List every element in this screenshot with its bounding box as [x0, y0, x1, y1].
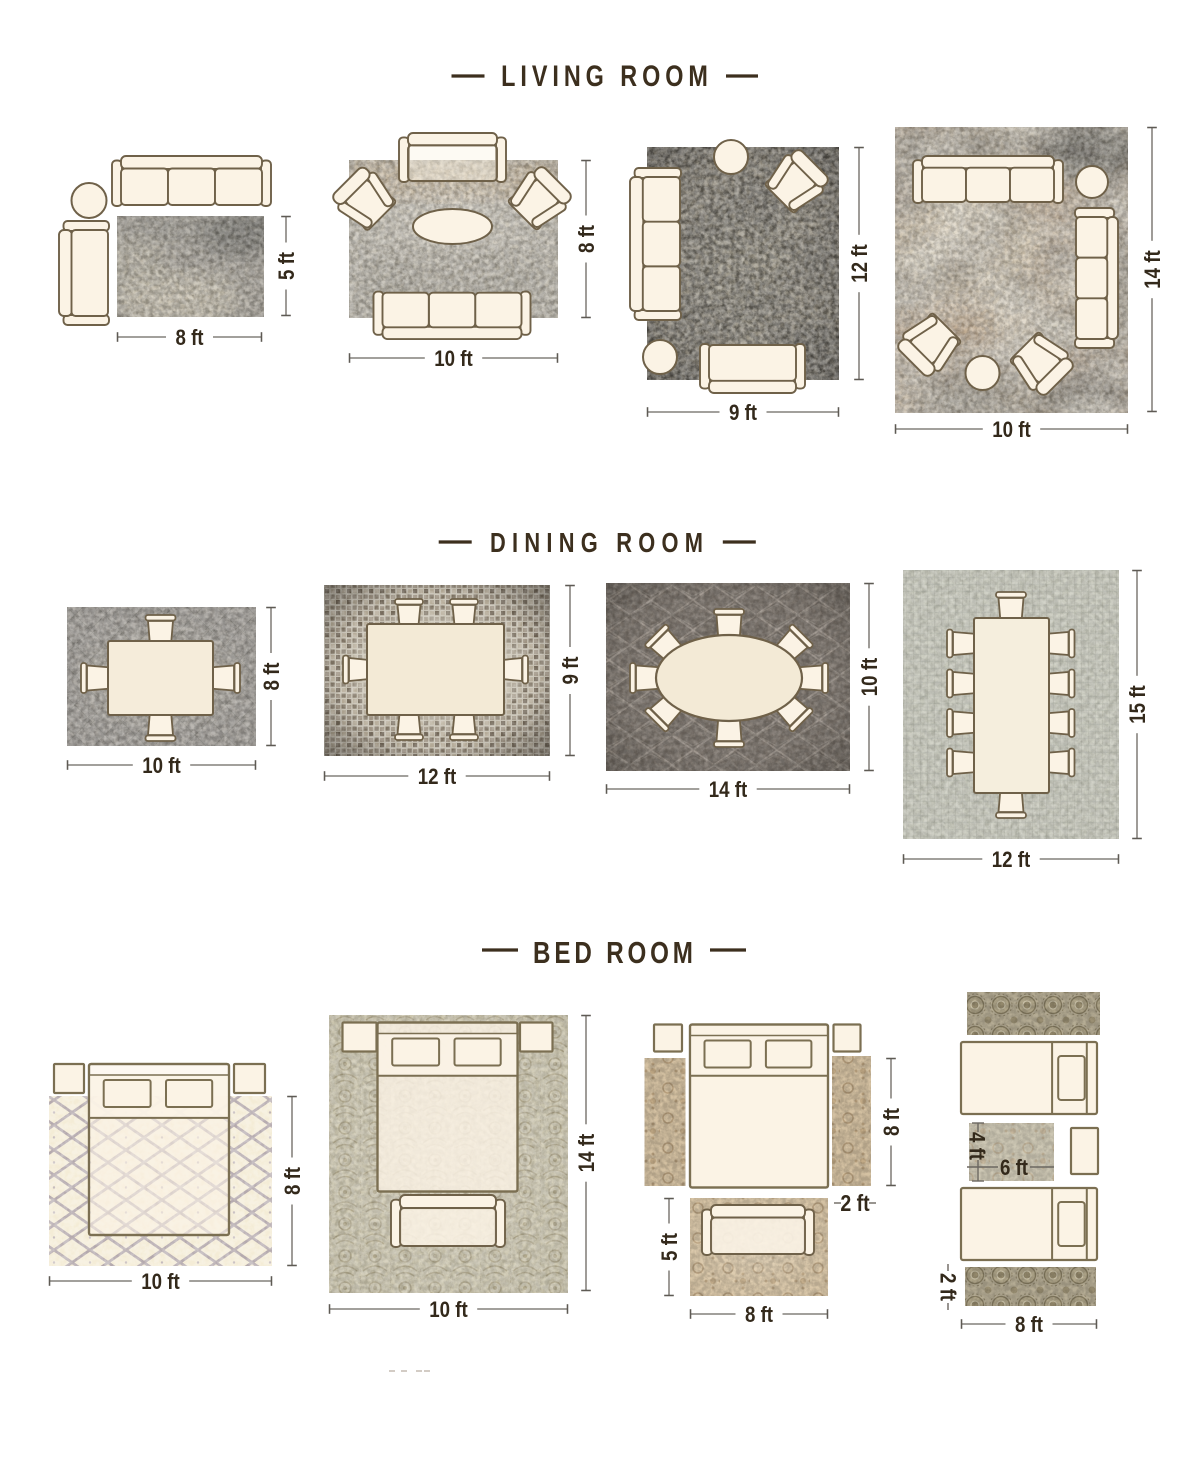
svg-text:6 ft: 6 ft: [1000, 1157, 1028, 1181]
svg-text:10 ft: 10 ft: [434, 348, 473, 372]
svg-text:8 ft: 8 ft: [1015, 1314, 1043, 1338]
svg-text:12 ft: 12 ft: [418, 766, 457, 790]
svg-text:5 ft: 5 ft: [659, 1233, 683, 1261]
svg-text:10 ft: 10 ft: [142, 755, 181, 779]
svg-text:10 ft: 10 ft: [859, 658, 883, 697]
svg-text:8 ft: 8 ft: [576, 225, 600, 253]
svg-text:9 ft: 9 ft: [729, 402, 757, 426]
svg-text:5 ft: 5 ft: [276, 252, 300, 280]
svg-text:10 ft: 10 ft: [429, 1299, 468, 1323]
svg-text:4 ft: 4 ft: [964, 1132, 988, 1160]
svg-text:15 ft: 15 ft: [1127, 685, 1151, 724]
svg-text:BED ROOM: BED ROOM: [533, 935, 693, 970]
svg-text:10 ft: 10 ft: [992, 419, 1031, 443]
svg-text:8 ft: 8 ft: [745, 1304, 773, 1328]
svg-text:2 ft: 2 ft: [840, 1191, 869, 1217]
svg-text:12 ft: 12 ft: [849, 244, 873, 283]
svg-text:14 ft: 14 ft: [1142, 250, 1166, 289]
svg-text:9 ft: 9 ft: [560, 656, 584, 684]
svg-text:8 ft: 8 ft: [881, 1108, 905, 1136]
svg-text:12 ft: 12 ft: [992, 849, 1031, 873]
svg-text:10 ft: 10 ft: [141, 1271, 180, 1295]
svg-text:8 ft: 8 ft: [175, 327, 203, 351]
svg-text:14 ft: 14 ft: [709, 779, 748, 803]
svg-text:8 ft: 8 ft: [282, 1167, 306, 1195]
svg-text:2 ft: 2 ft: [935, 1273, 959, 1301]
svg-text:8 ft: 8 ft: [261, 662, 285, 690]
svg-text:LIVING ROOM: LIVING ROOM: [501, 59, 708, 92]
svg-text:14 ft: 14 ft: [576, 1134, 600, 1173]
svg-text:DINING ROOM: DINING ROOM: [490, 527, 703, 558]
